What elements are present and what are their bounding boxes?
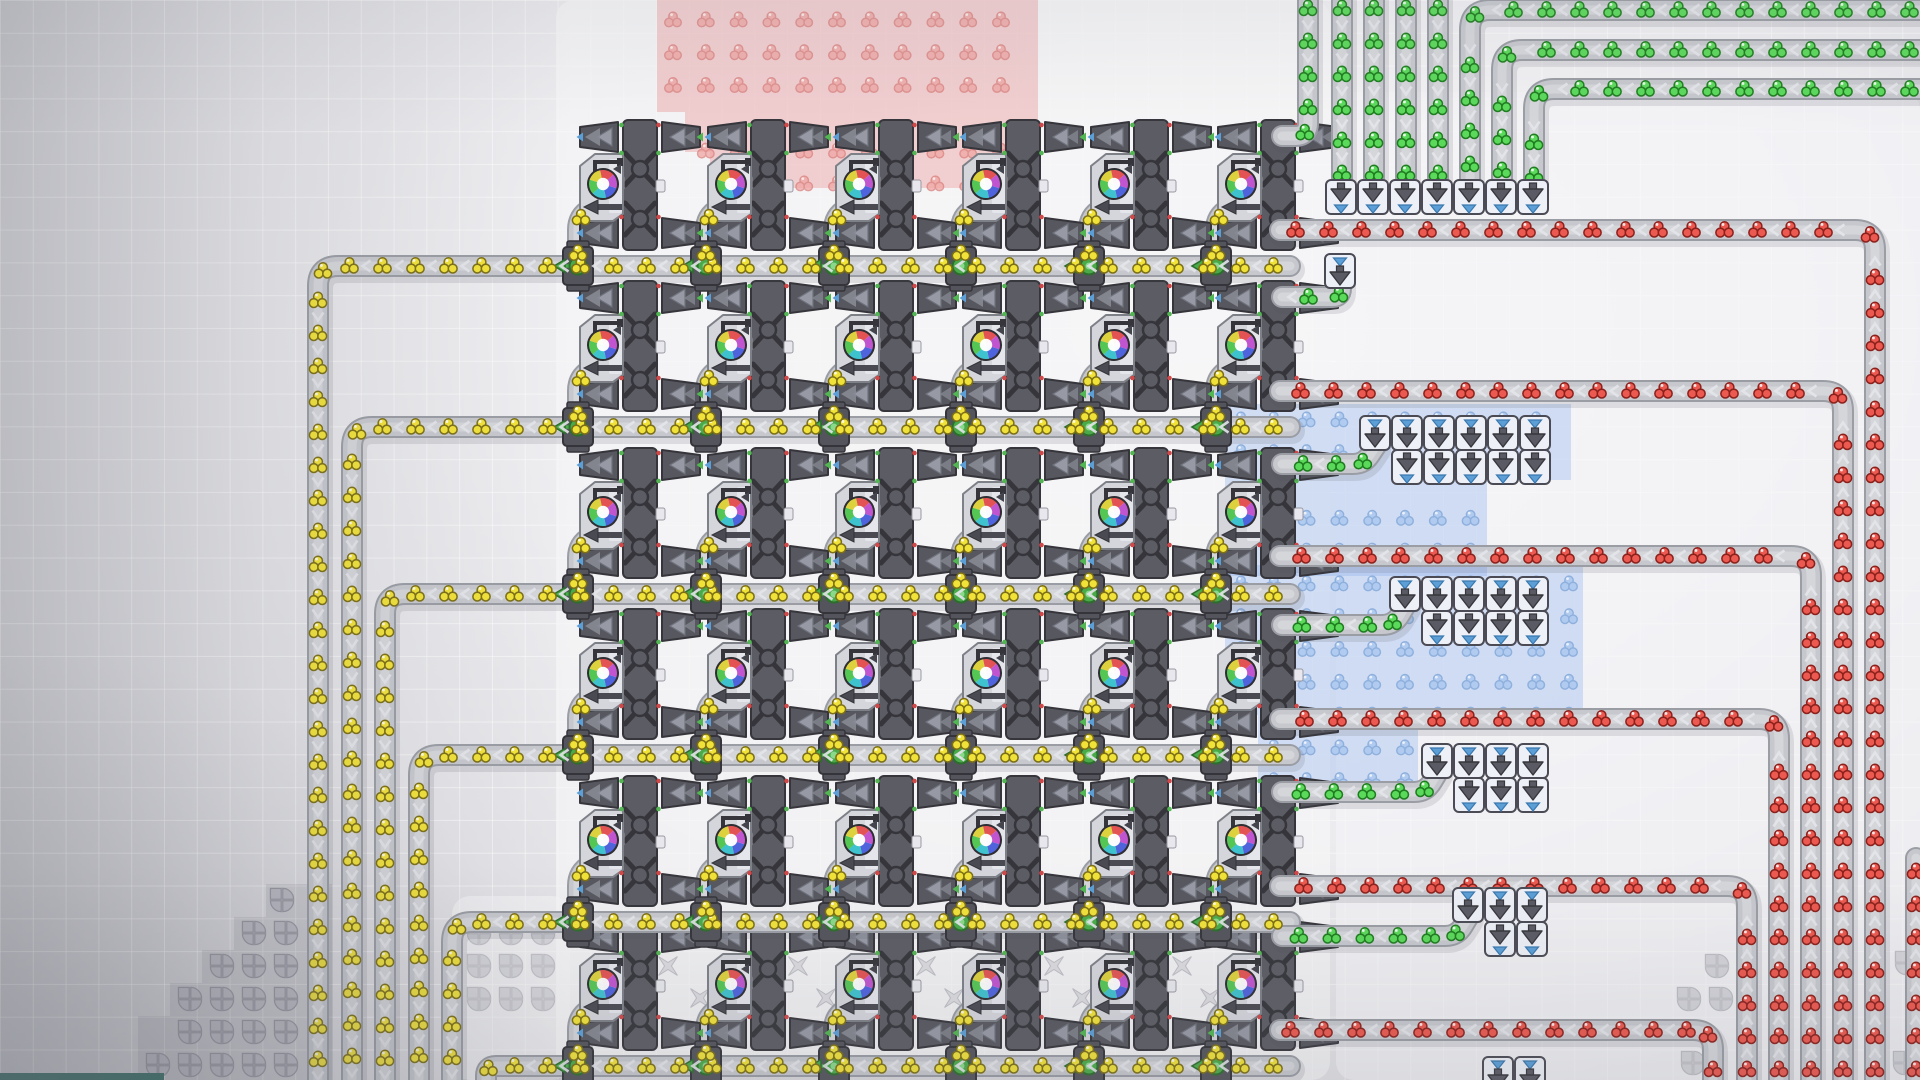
launch-row-top[interactable] xyxy=(1326,180,1548,214)
unbuilt-platform-steps xyxy=(138,884,332,1080)
bottom-toolbar-edge[interactable] xyxy=(0,1073,164,1080)
catcher-single[interactable] xyxy=(1325,254,1355,288)
game-viewport xyxy=(0,0,1920,1080)
factory-canvas[interactable] xyxy=(0,0,1920,1080)
